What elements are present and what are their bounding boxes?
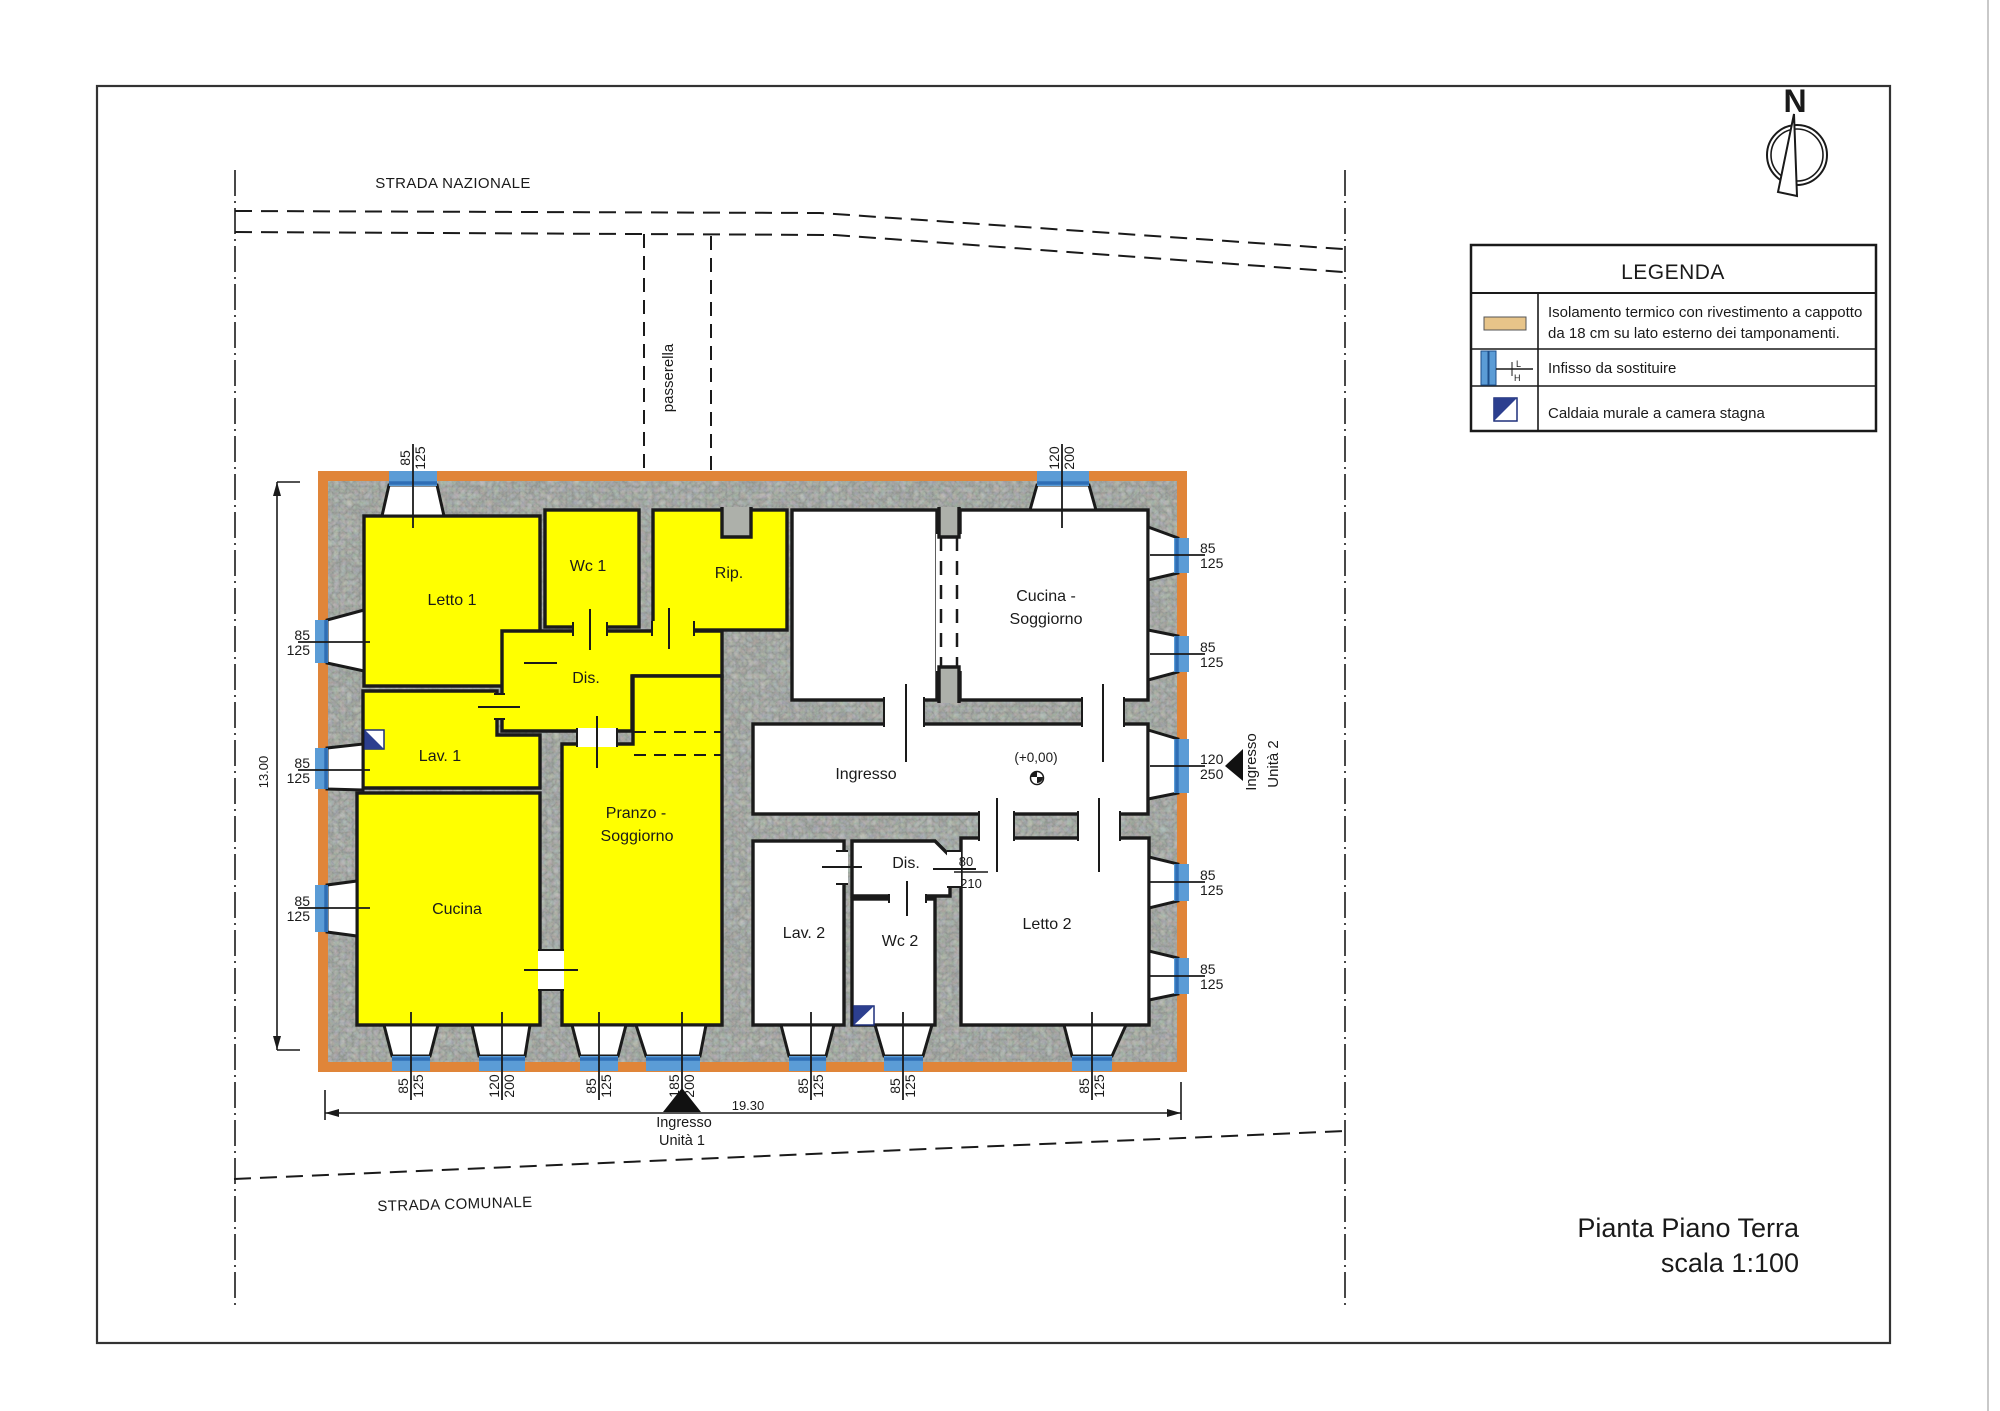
svg-text:Soggiorno: Soggiorno [601, 828, 674, 845]
svg-text:85: 85 [294, 755, 310, 771]
svg-text:125: 125 [287, 642, 311, 658]
svg-text:120: 120 [1200, 751, 1224, 767]
svg-text:Soggiorno: Soggiorno [1010, 611, 1083, 628]
svg-text:Dis.: Dis. [892, 855, 920, 872]
svg-text:125: 125 [412, 446, 428, 470]
svg-text:125: 125 [287, 770, 311, 786]
svg-text:125: 125 [1200, 882, 1224, 898]
svg-text:Ingresso: Ingresso [1243, 733, 1260, 791]
svg-text:Lav. 1: Lav. 1 [419, 748, 462, 765]
svg-text:85: 85 [1076, 1078, 1092, 1094]
svg-text:85: 85 [294, 627, 310, 643]
svg-text:Rip.: Rip. [715, 565, 743, 582]
svg-text:210: 210 [960, 876, 982, 891]
svg-text:Pranzo -: Pranzo - [606, 805, 666, 822]
svg-text:125: 125 [902, 1074, 918, 1098]
svg-text:Dis.: Dis. [572, 670, 600, 687]
svg-text:Unità 2: Unità 2 [1265, 740, 1282, 788]
svg-text:85: 85 [395, 1078, 411, 1094]
svg-text:LEGENDA: LEGENDA [1621, 261, 1725, 284]
svg-text:Unità 1: Unità 1 [659, 1133, 705, 1149]
svg-text:Isolamento termico con rivesti: Isolamento termico con rivestimento a ca… [1548, 304, 1862, 321]
svg-text:200: 200 [1061, 446, 1077, 470]
svg-text:N: N [1783, 83, 1806, 119]
svg-text:250: 250 [1200, 766, 1224, 782]
svg-text:Infisso da sostituire: Infisso da sostituire [1548, 360, 1676, 377]
svg-text:85: 85 [397, 450, 413, 466]
svg-text:120: 120 [486, 1074, 502, 1098]
svg-text:13.00: 13.00 [256, 756, 271, 789]
svg-text:125: 125 [598, 1074, 614, 1098]
svg-text:19.30: 19.30 [732, 1098, 765, 1113]
svg-text:Wc 2: Wc 2 [882, 933, 919, 950]
svg-text:85: 85 [1200, 540, 1216, 556]
svg-text:85: 85 [583, 1078, 599, 1094]
svg-text:200: 200 [501, 1074, 517, 1098]
svg-text:85: 85 [1200, 639, 1216, 655]
svg-text:85: 85 [795, 1078, 811, 1094]
svg-text:85: 85 [1200, 867, 1216, 883]
svg-text:Cucina -: Cucina - [1016, 588, 1076, 605]
svg-text:125: 125 [1200, 654, 1224, 670]
svg-text:Ingresso: Ingresso [835, 766, 896, 783]
svg-text:125: 125 [1091, 1074, 1107, 1098]
svg-text:Ingresso: Ingresso [656, 1115, 712, 1131]
svg-text:Cucina: Cucina [432, 901, 482, 918]
svg-text:85: 85 [887, 1078, 903, 1094]
svg-text:125: 125 [1200, 555, 1224, 571]
svg-text:Lav. 2: Lav. 2 [783, 925, 826, 942]
svg-text:120: 120 [1046, 446, 1062, 470]
svg-text:85: 85 [294, 893, 310, 909]
svg-text:Wc 1: Wc 1 [570, 558, 607, 575]
svg-text:Letto 1: Letto 1 [428, 592, 477, 609]
svg-text:STRADA NAZIONALE: STRADA NAZIONALE [375, 175, 531, 192]
svg-text:Letto 2: Letto 2 [1023, 916, 1072, 933]
svg-text:125: 125 [1200, 976, 1224, 992]
svg-text:da 18 cm su lato esterno dei t: da 18 cm su lato esterno dei tamponament… [1548, 325, 1840, 342]
svg-text:Pianta Piano Terra: Pianta Piano Terra [1577, 1213, 1800, 1243]
svg-text:125: 125 [287, 908, 311, 924]
svg-text:Caldaia murale a camera stagna: Caldaia murale a camera stagna [1548, 405, 1765, 422]
svg-text:H: H [1514, 373, 1521, 383]
svg-text:80: 80 [959, 854, 973, 869]
svg-text:L: L [1516, 359, 1521, 369]
svg-text:125: 125 [810, 1074, 826, 1098]
svg-text:passerella: passerella [660, 343, 677, 412]
svg-text:scala 1:100: scala 1:100 [1661, 1248, 1799, 1278]
svg-text:85: 85 [1200, 961, 1216, 977]
svg-text:125: 125 [410, 1074, 426, 1098]
svg-text:(+0,00): (+0,00) [1014, 750, 1057, 765]
